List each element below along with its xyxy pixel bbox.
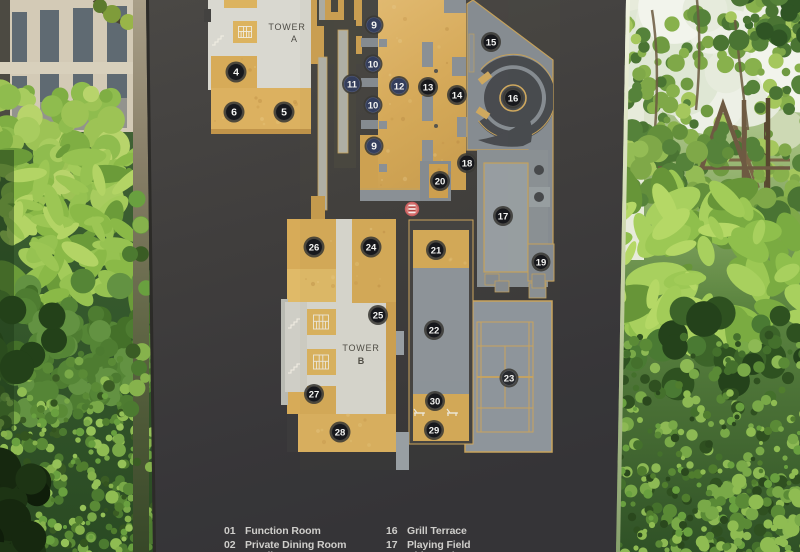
svg-text:13: 13 <box>423 83 434 94</box>
svg-text:9: 9 <box>371 141 377 153</box>
svg-text:6: 6 <box>231 107 237 119</box>
svg-text:20: 20 <box>435 177 446 188</box>
svg-text:21: 21 <box>431 246 442 257</box>
svg-text:12: 12 <box>394 82 405 93</box>
svg-text:17: 17 <box>498 212 509 223</box>
svg-text:11: 11 <box>347 80 358 91</box>
svg-text:26: 26 <box>309 243 320 254</box>
svg-text:A: A <box>291 34 297 44</box>
svg-text:Function Room: Function Room <box>245 525 321 537</box>
svg-text:10: 10 <box>368 101 379 112</box>
svg-text:28: 28 <box>335 428 346 439</box>
svg-text:19: 19 <box>536 258 547 269</box>
svg-text:27: 27 <box>309 390 320 401</box>
svg-text:30: 30 <box>430 397 441 408</box>
svg-text:10: 10 <box>368 60 379 71</box>
svg-text:14: 14 <box>452 91 463 102</box>
svg-text:16: 16 <box>386 525 398 537</box>
svg-text:18: 18 <box>462 159 473 170</box>
svg-text:5: 5 <box>281 107 287 119</box>
svg-text:01: 01 <box>224 525 236 537</box>
svg-text:9: 9 <box>371 20 377 32</box>
svg-text:23: 23 <box>504 374 515 385</box>
svg-text:15: 15 <box>486 38 497 49</box>
svg-text:22: 22 <box>429 326 440 337</box>
svg-text:24: 24 <box>366 243 377 254</box>
svg-text:4: 4 <box>233 67 239 79</box>
svg-text:25: 25 <box>373 311 384 322</box>
svg-text:16: 16 <box>508 94 519 105</box>
svg-text:29: 29 <box>429 426 440 437</box>
svg-text:Grill Terrace: Grill Terrace <box>407 525 467 537</box>
